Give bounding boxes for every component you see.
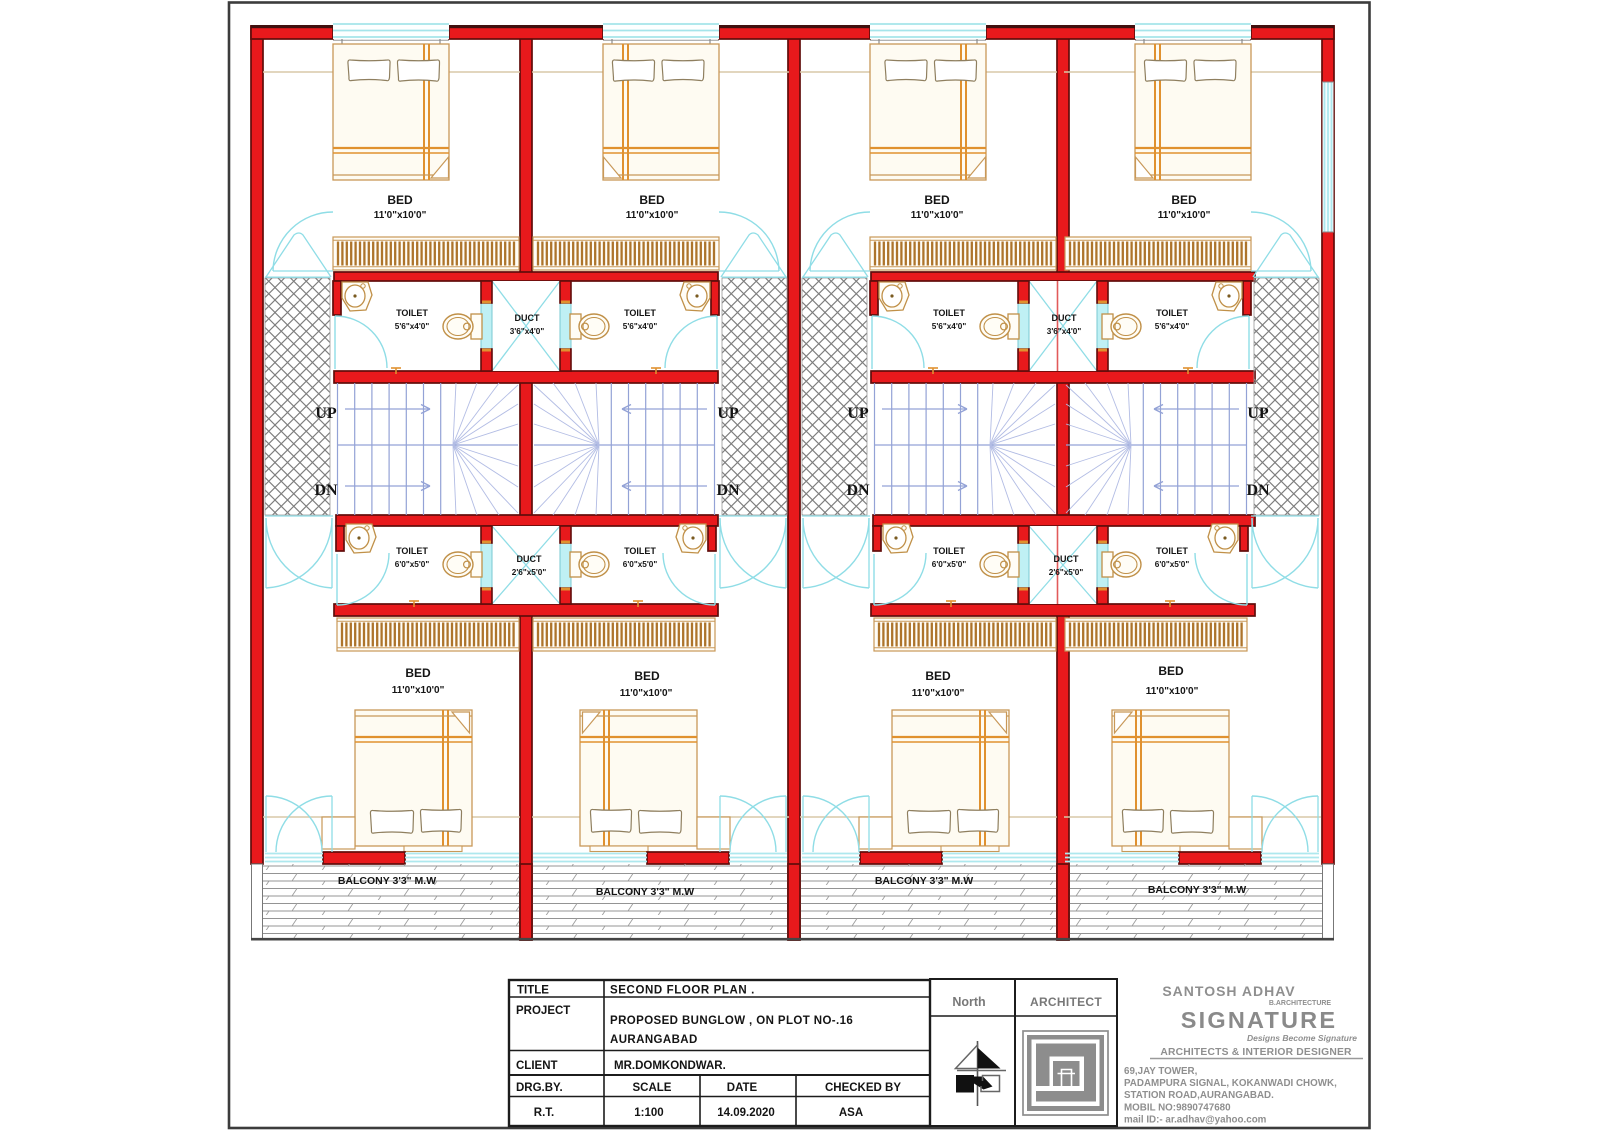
svg-text:ARCHITECT: ARCHITECT <box>1030 995 1102 1009</box>
svg-text:ASA: ASA <box>839 1107 863 1119</box>
svg-text:11'0"x10'0": 11'0"x10'0" <box>912 688 965 699</box>
svg-text:TOILET: TOILET <box>933 308 965 318</box>
svg-text:BALCONY 3'3" M.W: BALCONY 3'3" M.W <box>1148 884 1246 896</box>
svg-text:SANTOSH ADHAV: SANTOSH ADHAV <box>1162 983 1295 999</box>
svg-text:6'0"x5'0": 6'0"x5'0" <box>932 560 967 569</box>
svg-text:SECOND FLOOR PLAN .: SECOND FLOOR PLAN . <box>610 985 755 997</box>
svg-text:3'6"x4'0": 3'6"x4'0" <box>510 327 545 336</box>
svg-text:TOILET: TOILET <box>396 546 428 556</box>
svg-text:11'0"x10'0": 11'0"x10'0" <box>1146 686 1199 697</box>
svg-text:11'0"x10'0": 11'0"x10'0" <box>1158 210 1211 221</box>
svg-text:CHECKED BY: CHECKED BY <box>825 1082 901 1094</box>
svg-text:TITLE: TITLE <box>517 985 549 997</box>
svg-text:DUCT: DUCT <box>515 313 540 323</box>
svg-text:11'0"x10'0": 11'0"x10'0" <box>626 210 679 221</box>
svg-text:TOILET: TOILET <box>1156 546 1188 556</box>
svg-text:mail ID:- ar.adhav@yahoo.com: mail ID:- ar.adhav@yahoo.com <box>1124 1115 1267 1126</box>
svg-text:North: North <box>952 995 985 1009</box>
svg-text:TOILET: TOILET <box>624 308 656 318</box>
svg-text:BALCONY 3'3" M.W: BALCONY 3'3" M.W <box>596 886 694 898</box>
svg-text:DN: DN <box>1246 482 1270 499</box>
svg-text:PROPOSED BUNGLOW , ON PLOT NO-: PROPOSED BUNGLOW , ON PLOT NO-.16 <box>610 1015 853 1027</box>
svg-text:SIGNATURE: SIGNATURE <box>1181 1007 1337 1033</box>
svg-text:5'6"x4'0": 5'6"x4'0" <box>395 322 430 331</box>
svg-text:DN: DN <box>314 482 338 499</box>
svg-text:2'6"x5'0": 2'6"x5'0" <box>512 568 547 577</box>
svg-text:STATION ROAD,AURANGABAD.: STATION ROAD,AURANGABAD. <box>1124 1090 1274 1101</box>
svg-text:BED: BED <box>1158 664 1184 678</box>
svg-text:R.T.: R.T. <box>534 1107 554 1119</box>
svg-text:ARCHITECTS & INTERIOR DESIGN: ARCHITECTS & INTERIOR DESIGNER <box>1160 1047 1352 1058</box>
svg-text:BED: BED <box>924 193 950 207</box>
svg-text:BED: BED <box>1171 193 1197 207</box>
svg-text:BED: BED <box>639 193 665 207</box>
svg-text:TOILET: TOILET <box>396 308 428 318</box>
svg-text:Designs Become Signature: Designs Become Signature <box>1247 1033 1357 1043</box>
svg-text:11'0"x10'0": 11'0"x10'0" <box>392 685 445 696</box>
svg-text:3'6"x4'0": 3'6"x4'0" <box>1047 327 1082 336</box>
svg-text:DUCT: DUCT <box>1054 554 1079 564</box>
svg-text:2'6"x5'0": 2'6"x5'0" <box>1049 568 1084 577</box>
svg-text:6'0"x5'0": 6'0"x5'0" <box>1155 560 1190 569</box>
svg-text:UP: UP <box>315 405 337 422</box>
svg-text:BALCONY 3'3" M.W: BALCONY 3'3" M.W <box>338 875 436 887</box>
svg-text:AURANGABAD: AURANGABAD <box>610 1034 698 1046</box>
svg-text:MR.DOMKONDWAR.: MR.DOMKONDWAR. <box>614 1060 726 1072</box>
svg-text:11'0"x10'0": 11'0"x10'0" <box>911 210 964 221</box>
svg-text:DATE: DATE <box>727 1082 758 1094</box>
svg-text:1:100: 1:100 <box>634 1107 663 1119</box>
svg-text:BED: BED <box>634 669 660 683</box>
svg-text:SCALE: SCALE <box>633 1082 672 1094</box>
svg-text:11'0"x10'0": 11'0"x10'0" <box>620 688 673 699</box>
svg-text:6'0"x5'0": 6'0"x5'0" <box>395 560 430 569</box>
svg-text:DUCT: DUCT <box>517 554 542 564</box>
svg-text:BED: BED <box>405 666 431 680</box>
svg-text:5'6"x4'0": 5'6"x4'0" <box>1155 322 1190 331</box>
svg-text:6'0"x5'0": 6'0"x5'0" <box>623 560 658 569</box>
svg-text:CLIENT: CLIENT <box>516 1060 558 1072</box>
svg-text:DN: DN <box>846 482 870 499</box>
svg-text:TOILET: TOILET <box>624 546 656 556</box>
svg-text:TOILET: TOILET <box>933 546 965 556</box>
svg-text:UP: UP <box>847 405 869 422</box>
svg-text:TOILET: TOILET <box>1156 308 1188 318</box>
svg-text:BED: BED <box>387 193 413 207</box>
svg-text:UP: UP <box>1247 405 1269 422</box>
svg-text:MOBIL NO:9890747680: MOBIL NO:9890747680 <box>1124 1103 1231 1114</box>
svg-text:5'6"x4'0": 5'6"x4'0" <box>623 322 658 331</box>
svg-text:69,JAY TOWER,: 69,JAY TOWER, <box>1124 1066 1198 1077</box>
svg-text:DN: DN <box>716 482 740 499</box>
svg-text:PROJECT: PROJECT <box>516 1005 570 1017</box>
svg-text:11'0"x10'0": 11'0"x10'0" <box>374 210 427 221</box>
svg-text:UP: UP <box>717 405 739 422</box>
svg-text:14.09.2020: 14.09.2020 <box>717 1107 775 1119</box>
svg-text:DRG.BY.: DRG.BY. <box>516 1082 563 1094</box>
svg-text:DUCT: DUCT <box>1052 313 1077 323</box>
svg-text:PADAMPURA SIGNAL, KOKANWADI CH: PADAMPURA SIGNAL, KOKANWADI CHOWK, <box>1124 1078 1337 1089</box>
svg-text:5'6"x4'0": 5'6"x4'0" <box>932 322 967 331</box>
svg-text:BALCONY 3'3" M.W: BALCONY 3'3" M.W <box>875 875 973 887</box>
svg-text:B.ARCHITECTURE: B.ARCHITECTURE <box>1269 1000 1332 1007</box>
svg-text:BED: BED <box>925 669 951 683</box>
